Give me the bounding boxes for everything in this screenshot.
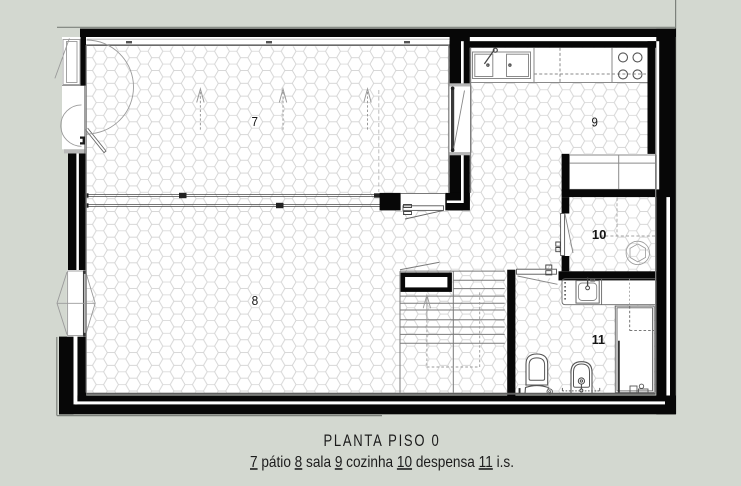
svg-text:7: 7 [251, 114, 258, 129]
svg-text:PLANTA PISO 0: PLANTA PISO 0 [324, 431, 441, 450]
svg-text:9: 9 [592, 115, 598, 130]
svg-text:10: 10 [592, 228, 607, 242]
svg-text:11: 11 [592, 333, 605, 347]
svg-text:7 pátio 8 sala 9 cozinha 10 de: 7 pátio 8 sala 9 cozinha 10 despensa 11 … [250, 454, 514, 471]
svg-text:8: 8 [252, 293, 259, 308]
